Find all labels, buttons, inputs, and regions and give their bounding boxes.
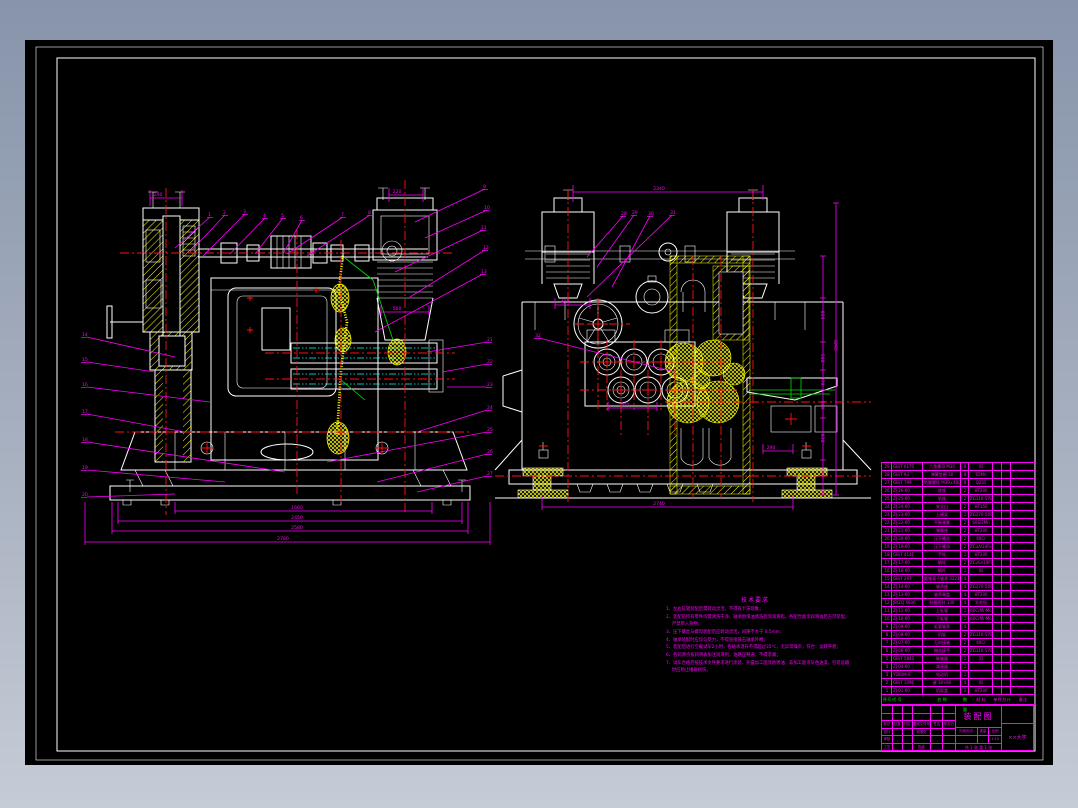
balloon-label: 18 <box>82 437 88 443</box>
table-cell <box>1002 647 1011 654</box>
screwdown-column <box>107 192 199 462</box>
table-cell: 六角螺母 M30 <box>923 463 961 470</box>
tb-grid-cell <box>943 729 955 736</box>
table-cell: ZJ-17-00 <box>892 559 923 566</box>
table-cell: 键 18×80 <box>923 679 961 686</box>
table-cell: 14 <box>882 583 892 590</box>
table-cell: 机架盖 <box>923 687 961 694</box>
balloon-label: 7 <box>341 212 344 218</box>
table-cell <box>993 631 1002 638</box>
table-cell <box>993 663 1002 670</box>
table-cell <box>969 623 993 630</box>
balloon-label: 24 <box>487 405 493 411</box>
table-cell: 轨座 <box>923 495 961 502</box>
right-view <box>495 190 871 502</box>
table-cell: HT200 <box>969 687 993 694</box>
table-cell <box>1002 679 1011 686</box>
technical-notes: 技术要求 1、左右轧辊装配后需转动灵活，不得有卡滞现象；2、装配前所有零件均需清… <box>660 595 850 676</box>
table-cell: ZJ-21-00 <box>892 527 923 534</box>
col-unit-weight: 单件 <box>993 695 1002 704</box>
table-cell: 2 <box>961 631 969 638</box>
table-cell <box>1002 623 1011 630</box>
table-cell <box>993 671 1002 678</box>
balloon-label: 2 <box>223 210 226 216</box>
table-cell <box>1011 559 1035 566</box>
tb-grid-cell: 签名 <box>931 721 943 728</box>
tb-grid-cell <box>931 706 943 713</box>
tb-grid-cell <box>893 736 903 743</box>
table-cell <box>1002 599 1011 606</box>
table-cell: 10 <box>882 615 892 622</box>
tb-scale-label: 比例 <box>989 728 1001 735</box>
table-cell: ZJ-07-00 <box>892 639 923 646</box>
table-cell <box>969 671 993 678</box>
table-cell: 2 <box>961 535 969 542</box>
col-total-weight: 总计 <box>1002 695 1011 704</box>
left-view <box>107 180 470 515</box>
table-cell <box>993 503 1002 510</box>
table-cell <box>993 527 1002 534</box>
rollers <box>291 340 443 392</box>
table-cell: 蜗轮 <box>923 559 961 566</box>
table-cell: 弹簧垫圈 30 <box>923 471 961 478</box>
balloon-label: 3 <box>243 209 246 215</box>
tb-weight-label: 重量 <box>978 728 990 735</box>
table-cell: HT200 <box>969 551 993 558</box>
table-cell: 2 <box>961 503 969 510</box>
tb-grid-cell <box>893 714 903 721</box>
balloon-label: 6 <box>300 215 303 221</box>
table-cell: ZJ-23-00 <box>892 511 923 518</box>
table-cell: 1 <box>882 687 892 694</box>
table-cell <box>1011 567 1035 574</box>
table-cell: Y280M-6 <box>892 671 923 678</box>
table-cell: 安全臼 <box>923 503 961 510</box>
table-cell: 2 <box>961 519 969 526</box>
tb-grid-cell: 设计 <box>882 729 893 736</box>
table-cell: 2 <box>961 647 969 654</box>
table-cell: 4 <box>961 623 969 630</box>
tb-grid-cell: 处数 <box>893 721 903 728</box>
tb-stage-value <box>956 736 978 743</box>
balloon-label: 16 <box>82 382 88 388</box>
table-cell: 12 <box>882 599 892 606</box>
table-cell: ZJ-16-00 <box>892 567 923 574</box>
dimension-label: 290 <box>767 445 776 451</box>
table-cell: ZJ-13-00 <box>892 591 923 598</box>
table-cell: 轧辊轴承 <box>923 623 961 630</box>
table-cell <box>1002 607 1011 614</box>
table-cell: 蜗杆 <box>923 567 961 574</box>
table-cell <box>1011 615 1035 622</box>
table-cell: 60CrMnMo <box>969 607 993 614</box>
table-cell: 45 <box>969 567 993 574</box>
table-cell <box>993 471 1002 478</box>
table-row: 9ZJ-09-00轧辊轴承4 <box>882 622 1035 630</box>
table-cell: 13 <box>882 591 892 598</box>
table-cell <box>1011 647 1035 654</box>
table-cell: 15 <box>882 575 892 582</box>
table-row: 7ZJ-07-00万向接轴240Cr <box>882 638 1035 646</box>
table-cell: 电动机 <box>923 671 961 678</box>
table-cell: HT150 <box>969 503 993 510</box>
table-cell: 羊毛毡 <box>969 599 993 606</box>
note-item: 3、压下螺丝与螺母装配后应转动灵活，间隙不大于 0.5mm； <box>666 630 850 637</box>
tb-grid: 标记处数分区更改文件号签名年月日设计标准化审核工艺批准 <box>882 706 956 750</box>
tb-sheet-info: 共 1 张 第 1 张 <box>956 744 1001 750</box>
table-cell <box>993 607 1002 614</box>
tb-grid-cell: 年月日 <box>943 721 955 728</box>
table-cell <box>1011 687 1035 694</box>
table-cell <box>1002 471 1011 478</box>
table-cell <box>1011 639 1035 646</box>
tb-grid-cell <box>903 744 913 751</box>
table-cell: 底座 <box>923 487 961 494</box>
table-cell: ZJ-19-00 <box>892 543 923 550</box>
note-item: 7、试车合格后按技术文件要求进行涂装，外露加工面涂防锈油，非加工面涂灰色油漆，包… <box>666 661 850 675</box>
table-cell: 18 <box>882 551 892 558</box>
dimension-label: 370 <box>819 377 825 386</box>
table-cell: 2 <box>961 487 969 494</box>
table-cell <box>993 655 1002 662</box>
table-cell: 21 <box>882 527 892 534</box>
table-row: 21ZJ-21-00弹簧座2HT200 <box>882 526 1035 534</box>
table-cell <box>1002 551 1011 558</box>
table-cell: 26 <box>882 487 892 494</box>
table-cell: GB/T 4141 <box>892 551 923 558</box>
drawing-canvas[interactable]: 1234567891011121314151617181920212223242… <box>25 40 1053 765</box>
table-row: 4ZJ-04-00减速器1 <box>882 662 1035 670</box>
table-cell <box>993 519 1002 526</box>
table-cell: ZG270-500 <box>969 511 993 518</box>
tb-grid-cell <box>913 706 932 713</box>
table-cell <box>1011 607 1035 614</box>
tb-scale-value: 1:10 <box>989 736 1001 743</box>
table-cell <box>1011 543 1035 550</box>
table-cell: 平衡弹簧 <box>923 519 961 526</box>
dimension-label: 2780 <box>277 536 289 542</box>
balloon-label: 32 <box>535 333 541 339</box>
note-item: 5、装配后进行空载试车2小时，各轴承温升不得超过35℃，无异常噪声，符合：运转平… <box>666 645 850 652</box>
lever-linkage <box>327 253 406 454</box>
table-cell: 2 <box>961 687 969 694</box>
drawing-title: 装配图 <box>956 706 1001 728</box>
table-cell <box>993 575 1002 582</box>
table-cell: 45 <box>969 463 993 470</box>
table-cell: 1 <box>961 551 969 558</box>
tb-grid-cell <box>931 714 943 721</box>
table-cell: 压下螺母 <box>923 543 961 550</box>
table-cell <box>1002 631 1011 638</box>
table-cell: GB/T 6170 <box>892 463 923 470</box>
table-cell <box>1011 631 1035 638</box>
table-cell: 1 <box>961 607 969 614</box>
table-row: 18GB/T 4141手轮1HT200 <box>882 550 1035 558</box>
table-cell: 40Cr <box>969 639 993 646</box>
tb-grid-cell <box>903 706 913 713</box>
tb-grid-row <box>882 706 955 714</box>
table-cell <box>969 575 993 582</box>
table-cell <box>1011 471 1035 478</box>
table-cell <box>1011 591 1035 598</box>
table-cell <box>1011 575 1035 582</box>
table-row: 14ZJ-14-00轴承座4ZG270-500 <box>882 582 1035 590</box>
table-cell: ZJ-09-00 <box>892 623 923 630</box>
tb-grid-row: 标记处数分区更改文件号签名年月日 <box>882 721 955 729</box>
dimension-label: 2740 <box>653 501 665 507</box>
table-cell <box>993 479 1002 486</box>
table-cell: 35 <box>969 655 993 662</box>
table-cell: 2 <box>961 527 969 534</box>
table-cell: 手轮 <box>923 551 961 558</box>
balloon-label: 8 <box>368 210 371 216</box>
table-cell <box>993 591 1002 598</box>
table-cell <box>1011 583 1035 590</box>
table-cell: 6 <box>882 647 892 654</box>
table-cell <box>993 639 1002 646</box>
table-cell: 23 <box>882 511 892 518</box>
note-item: 6、各润滑点按润滑表加注润滑剂，油路应畅通，不得渗漏； <box>666 653 850 660</box>
table-cell: 60CrMnMo <box>969 615 993 622</box>
table-cell: ZG310-570 <box>969 631 993 638</box>
dimension-label: 560 <box>393 306 402 312</box>
balloon-label: 10 <box>484 205 490 211</box>
table-cell: 8 <box>961 463 969 470</box>
col-name: 名 称 <box>923 695 961 704</box>
table-cell <box>1002 615 1011 622</box>
table-cell: 7 <box>882 639 892 646</box>
table-cell <box>1002 583 1011 590</box>
dimension-label: 830 <box>819 434 825 443</box>
parts-rows: 29GB/T 6170六角螺母 M3084528GB/T 93弹簧垫圈 3086… <box>882 462 1035 694</box>
table-row: 3Y280M-6电动机1 <box>882 670 1035 678</box>
table-cell: 机架 <box>923 631 961 638</box>
tb-grid-cell <box>903 736 913 743</box>
table-cell: HT200 <box>969 487 993 494</box>
table-cell: 24 <box>882 503 892 510</box>
title-block: 标记处数分区更改文件号签名年月日设计标准化审核工艺批准 装配图 阶段标记 重量 … <box>881 705 1034 751</box>
table-cell: 1 <box>961 567 969 574</box>
table-row: 22ZJ-22-00平衡弹簧260Si2Mn <box>882 518 1035 526</box>
table-cell: 5 <box>882 655 892 662</box>
table-cell: 弹簧座 <box>923 527 961 534</box>
table-cell <box>1002 687 1011 694</box>
balloon-label: 5 <box>281 213 284 219</box>
table-cell <box>993 495 1002 502</box>
table-cell: 25 <box>882 495 892 502</box>
tb-right-empty <box>1002 706 1033 724</box>
dimension-label: 560 <box>819 354 825 363</box>
note-item: 4、轴承装配时应均匀受力，不得直接锤击轴承外圈； <box>666 638 850 645</box>
dimension-label: 500 <box>621 402 630 408</box>
dimension-label: 540 <box>819 401 825 410</box>
table-row: 10ZJ-10-00下轧辊160CrMnMo <box>882 614 1035 622</box>
table-row: 15GB/T 297圆锥滚子轴承 322304 <box>882 574 1035 582</box>
tb-grid-cell <box>882 706 893 713</box>
tb-grid-cell <box>931 736 943 743</box>
table-cell: ZJ-26-00 <box>892 487 923 494</box>
table-cell <box>993 599 1002 606</box>
table-cell: 60Si2Mn <box>969 519 993 526</box>
table-cell <box>1002 463 1011 470</box>
balloon-label: 31 <box>670 210 676 216</box>
table-cell: 1 <box>961 663 969 670</box>
tb-grid-cell: 工艺 <box>882 744 893 751</box>
table-cell: 2 <box>882 679 892 686</box>
table-cell: 9 <box>882 623 892 630</box>
table-cell: 轴承端盖 <box>923 591 961 598</box>
table-row: 26ZJ-26-00底座2HT200 <box>882 486 1035 494</box>
table-cell <box>993 551 1002 558</box>
table-cell <box>969 663 993 670</box>
balloon-label: 9 <box>483 184 486 190</box>
table-row: 29GB/T 6170六角螺母 M30845 <box>882 462 1035 470</box>
table-cell <box>993 535 1002 542</box>
tb-stage-label: 阶段标记 <box>956 728 978 735</box>
table-row: 28GB/T 93弹簧垫圈 30865Mn <box>882 470 1035 478</box>
table-cell: 1 <box>961 615 969 622</box>
balloon-label: 26 <box>487 449 493 455</box>
tb-grid-cell <box>882 714 893 721</box>
balloon-label: 23 <box>487 382 493 388</box>
note-item: 2、装配前所有零件均需清洗干净，轴承用煤油清洗后涂润滑脂，各配合面涂润滑油后方可… <box>666 615 850 629</box>
table-cell: 8 <box>961 471 969 478</box>
balloon-label: 30 <box>648 211 654 217</box>
balloon-label: 12 <box>483 245 489 251</box>
table-cell <box>993 623 1002 630</box>
table-cell: GB/T 93 <box>892 471 923 478</box>
table-cell <box>1011 487 1035 494</box>
table-cell <box>1011 519 1035 526</box>
table-cell: 20 <box>882 535 892 542</box>
table-cell: ZJ-08-00 <box>892 631 923 638</box>
table-row: 16ZJ-16-00蜗杆145 <box>882 566 1035 574</box>
balloon-label: 17 <box>82 409 88 415</box>
table-cell: ZJ-11-00 <box>892 607 923 614</box>
table-cell <box>1002 487 1011 494</box>
table-cell <box>1002 639 1011 646</box>
table-row: 6ZJ-06-00梅花接手2ZG310-570 <box>882 646 1035 654</box>
table-row: 5GB/T 5843联轴器135 <box>882 654 1035 662</box>
tb-grid-cell: 标记 <box>882 721 893 728</box>
table-cell: ZJ-10-00 <box>892 615 923 622</box>
table-cell: ZJ-04-00 <box>892 663 923 670</box>
parts-list: 29GB/T 6170六角螺母 M3084528GB/T 93弹簧垫圈 3086… <box>881 462 1036 705</box>
table-cell <box>1011 623 1035 630</box>
table-row: 23ZJ-23-00上横梁1ZG270-500 <box>882 510 1035 518</box>
table-row: 27GB/T 799地脚螺栓 M30×4008Q235 <box>882 478 1035 486</box>
notes-list: 1、左右轧辊装配后需转动灵活，不得有卡滞现象；2、装配前所有零件均需清洗干净，轴… <box>660 607 850 675</box>
tb-organization: ××大学 <box>1002 724 1033 750</box>
table-cell: 压下螺丝 <box>923 535 961 542</box>
table-cell <box>1011 511 1035 518</box>
table-cell <box>1011 679 1035 686</box>
table-cell: 减速器 <box>923 663 961 670</box>
table-cell: 圆锥滚子轴承 32230 <box>923 575 961 582</box>
table-cell <box>1011 527 1035 534</box>
balloon-label: 15 <box>82 357 88 363</box>
table-cell: 万向接轴 <box>923 639 961 646</box>
table-cell: 上轧辊 <box>923 607 961 614</box>
table-cell <box>993 679 1002 686</box>
table-cell: JB/ZQ 4606 <box>892 599 923 606</box>
balloon-label: 11 <box>481 225 487 231</box>
table-cell: GB/T 297 <box>892 575 923 582</box>
table-cell: 8 <box>882 631 892 638</box>
table-cell <box>1002 511 1011 518</box>
dimension-label: 2580 <box>291 525 303 531</box>
tb-grid-row <box>882 714 955 722</box>
table-cell <box>1011 551 1035 558</box>
table-cell <box>1002 663 1011 670</box>
table-cell: 2 <box>961 495 969 502</box>
table-cell <box>1002 543 1011 550</box>
table-cell: ZG270-500 <box>969 583 993 590</box>
table-row: 8ZJ-08-00机架2ZG310-570 <box>882 630 1035 638</box>
cad-viewer: { "app": { "background_top": "#8794aa", … <box>0 0 1078 808</box>
col-no: 序号 <box>882 695 892 704</box>
tb-grid-row: 审核 <box>882 736 955 744</box>
table-cell: 上横梁 <box>923 511 961 518</box>
table-cell: 19 <box>882 543 892 550</box>
dimension-label: 2450 <box>291 515 303 521</box>
tb-grid-row: 工艺批准 <box>882 744 955 751</box>
tb-grid-cell <box>893 729 903 736</box>
table-cell: 2 <box>961 559 969 566</box>
table-cell <box>1011 503 1035 510</box>
table-row: 19ZJ-19-00压下螺母2ZCuAl10Fe3 <box>882 542 1035 550</box>
table-cell: 11 <box>882 607 892 614</box>
tb-grid-cell <box>943 744 955 751</box>
table-cell <box>1011 671 1035 678</box>
table-cell <box>1002 519 1011 526</box>
table-cell: ZJ-14-00 <box>892 583 923 590</box>
tb-grid-cell <box>931 729 943 736</box>
tb-grid-row: 设计标准化 <box>882 729 955 737</box>
table-row: 17ZJ-17-00蜗轮2ZCuSn10P1 <box>882 558 1035 566</box>
tb-grid-cell <box>903 729 913 736</box>
table-cell <box>1002 495 1011 502</box>
dimension-label: 2340 <box>653 186 665 192</box>
table-cell: HT200 <box>969 591 993 598</box>
balloon-label: 14 <box>82 332 88 338</box>
table-cell: 地脚螺栓 M30×400 <box>923 479 961 486</box>
table-cell: 16 <box>882 567 892 574</box>
table-cell <box>1011 663 1035 670</box>
table-cell <box>1002 479 1011 486</box>
table-cell: GB/T 1096 <box>892 679 923 686</box>
balloon-label: 22 <box>487 359 493 365</box>
table-cell: 40Cr <box>969 535 993 542</box>
table-row: 13ZJ-13-00轴承端盖4HT200 <box>882 590 1035 598</box>
tb-grid-cell <box>913 714 932 721</box>
tb-grid-cell <box>943 714 955 721</box>
dimension-label: 220 <box>393 189 402 195</box>
table-cell: ZJ-20-00 <box>892 535 923 542</box>
table-cell <box>993 511 1002 518</box>
table-cell: GB/T 5843 <box>892 655 923 662</box>
table-cell <box>1011 599 1035 606</box>
table-cell: ZJ-01-00 <box>892 687 923 694</box>
table-cell: 4 <box>961 599 969 606</box>
tb-grid-cell <box>931 744 943 751</box>
table-cell: 4 <box>961 679 969 686</box>
table-cell: 4 <box>882 663 892 670</box>
dimension-label: 240 <box>154 192 163 198</box>
table-cell: 17 <box>882 559 892 566</box>
balloon-label: 20 <box>82 492 88 498</box>
note-item: 1、左右轧辊装配后需转动灵活，不得有卡滞现象； <box>666 607 850 614</box>
